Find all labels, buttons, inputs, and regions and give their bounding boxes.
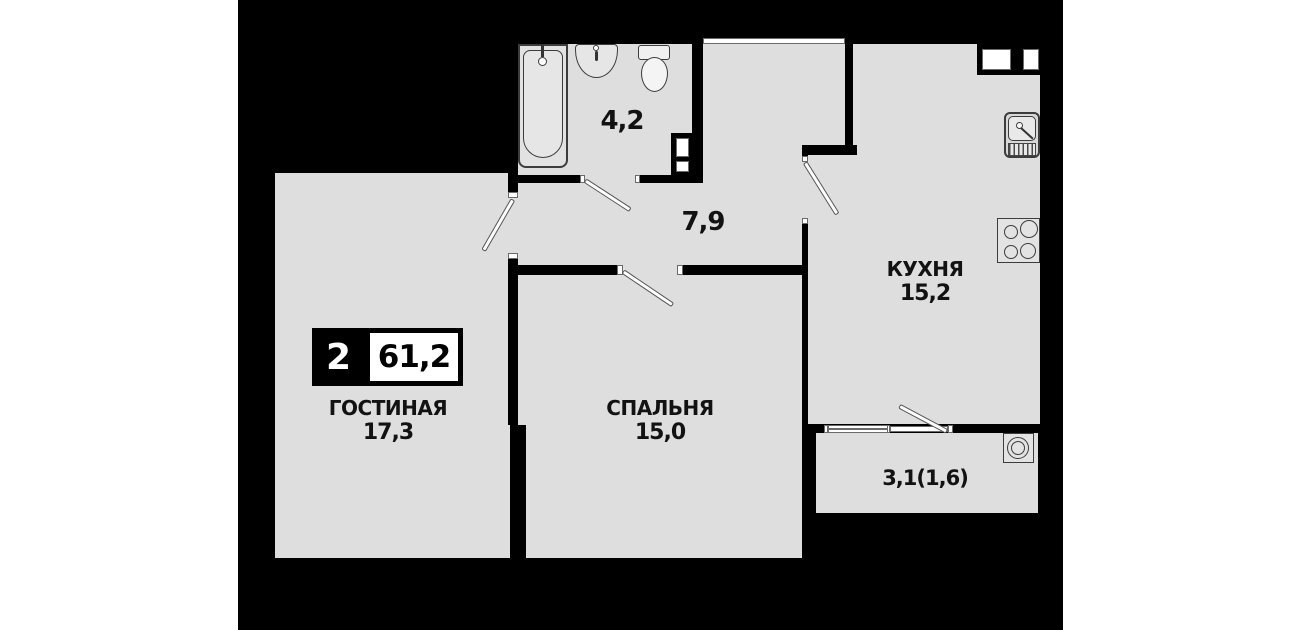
burner xyxy=(1004,225,1018,239)
wall xyxy=(802,145,857,155)
wall xyxy=(518,265,617,275)
label-living-area: 17,3 xyxy=(308,421,468,444)
door-jamb xyxy=(635,175,640,183)
bath-faucet-icon xyxy=(541,44,544,57)
wall xyxy=(845,43,853,152)
bathtub-basin xyxy=(523,50,563,158)
label-bathroom-area: 4,2 xyxy=(582,108,662,135)
sink-drainer xyxy=(1008,143,1036,156)
duct-cell xyxy=(676,161,689,172)
label-kitchen-area: 15,2 xyxy=(855,282,995,305)
room-kitchen-area-left xyxy=(808,155,853,425)
label-kitchen-name: КУХНЯ xyxy=(855,259,995,280)
bath-faucet-knob xyxy=(538,57,547,66)
wall xyxy=(802,224,808,558)
door-jamb xyxy=(948,425,953,433)
door-jamb xyxy=(677,265,683,275)
label-loggia-area: 3,1(1,6) xyxy=(845,467,1005,489)
label-hallway-area: 7,9 xyxy=(663,209,743,236)
sink-tap-stem xyxy=(595,51,598,61)
vent-cell xyxy=(982,49,1011,70)
wall xyxy=(683,265,802,275)
burner xyxy=(1004,245,1018,259)
wall xyxy=(692,43,703,183)
total-area-badge: 61,2 xyxy=(365,328,463,386)
washer-drum-inner xyxy=(1011,441,1025,455)
apartment-badge: 2 61,2 xyxy=(312,328,463,386)
burner xyxy=(1020,220,1038,238)
rooms-count-badge: 2 xyxy=(312,328,365,386)
door-jamb xyxy=(508,253,518,259)
duct-cell xyxy=(676,138,689,157)
door-jamb xyxy=(508,192,518,198)
label-bedroom-area: 15,0 xyxy=(580,421,740,444)
loggia-window xyxy=(828,429,888,433)
floorplan-stage: 2 61,2 ГОСТИНАЯ 17,3 СПАЛЬНЯ 15,0 КУХНЯ … xyxy=(0,0,1301,630)
label-living-name: ГОСТИНАЯ xyxy=(308,398,468,419)
wall xyxy=(508,253,518,425)
label-bedroom-name: СПАЛЬНЯ xyxy=(580,398,740,419)
vent-cell xyxy=(1023,49,1039,70)
door-jamb xyxy=(802,218,808,224)
entrance-door xyxy=(703,38,845,44)
wall xyxy=(508,175,580,183)
wall xyxy=(510,425,526,558)
burner xyxy=(1020,243,1036,259)
